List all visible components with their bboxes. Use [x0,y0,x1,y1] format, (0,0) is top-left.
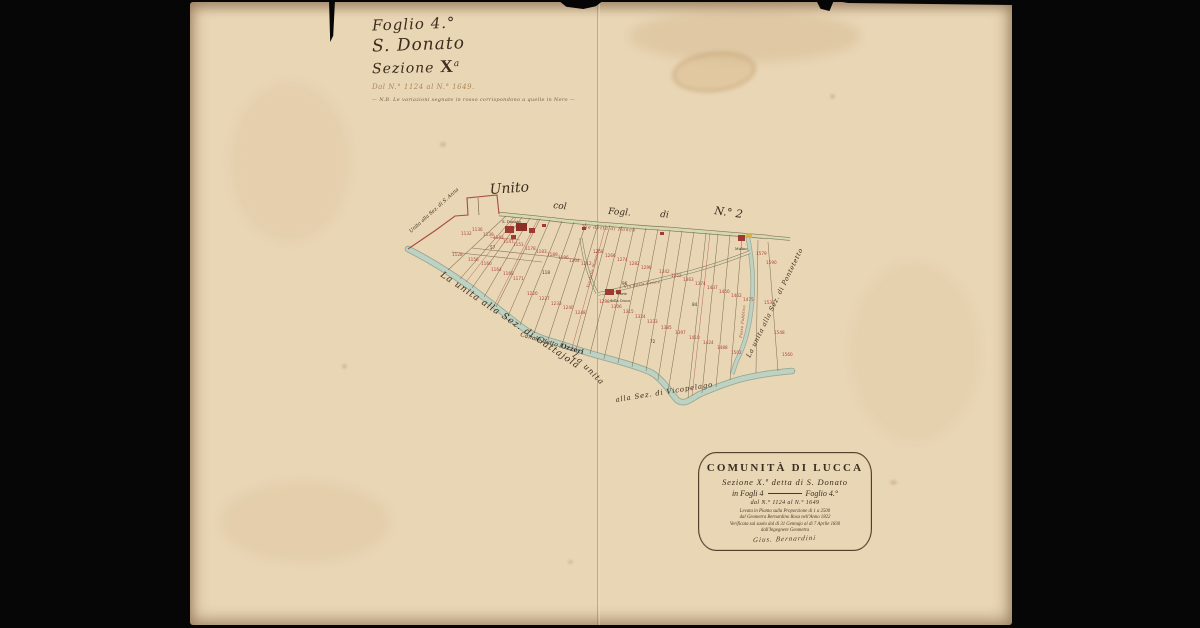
parcel-number: 1560 [782,352,793,357]
mill-label: Mulino [735,247,747,251]
parcel-number: 1227 [539,296,550,301]
parcel-number: 1488 [717,345,728,350]
cartouche-rule-dash [768,493,802,494]
parcel-number: 1248 [575,310,586,315]
cadastral-map: Unito col Fogl. di N.° 2 Via detta di Ro… [190,2,1012,625]
parcel-number: 1385 [661,325,672,330]
join-note-word-4: di [660,210,669,221]
adjoining-label-gattajola: La unita alla Sez. di Gattajola [437,270,581,372]
join-note-word-2: col [553,201,567,212]
parcel-number: 1183 [536,249,547,254]
parcel-number: 1171 [513,276,524,281]
parcel-number: 1298 [599,299,610,304]
promontory-line [478,198,479,215]
parcel-number: 1189 [547,252,558,257]
parcel-number: 1282 [629,261,640,266]
cartouche-parcel-range: dal N.° 1124 al N.° 1649 [751,500,820,506]
parcel-number: 1306 [611,304,622,309]
adjoining-sanna-group: Unita alla Sez. di S. Anna [408,187,460,235]
cartouche-engineer-line: dall'Ingegnere Geometra [761,528,809,533]
cartouche-title: COMUNITÀ DI LUCCA [707,462,864,474]
cartouche-sheet-number: Foglio 4.° [806,489,839,498]
parcel-number: 1352 [671,273,682,278]
village-label: S. Donato [502,219,521,224]
parcel-number: 1156 [468,257,479,262]
parcel-number: 1128 [452,252,463,257]
parcel-number: 1274 [617,257,628,262]
parcel-number: 1342 [659,269,670,274]
parcel-number: 1333 [647,319,658,324]
scan-background: Foglio 4.° S. Donato Sezione Xa Dal N.° … [0,0,1200,628]
parcel-number: 118 [542,270,550,275]
cartouche-signature: Gius. Bernardini [753,534,817,544]
parcel-number: 1437 [707,285,718,290]
parcel-number: 84 [692,302,698,307]
cartouche-verification: Verificata sul suolo dal dì 31 Gennajo a… [730,522,840,527]
parcel-number: 1424 [703,340,714,345]
parcel-number: 1178 [525,246,536,251]
parcel-number: 1363 [683,277,694,282]
parcel-number: 1450 [719,289,730,294]
parcel-number: 1212 [581,261,592,266]
parcel-number: 1240 [563,305,574,310]
parcel-number: 1462 [731,293,742,298]
parcel-number: 1502 [731,350,742,355]
parcel-number: 1475 [743,297,754,302]
parcel-number: 1196 [558,255,569,260]
adjoining-label-sanna: Unita alla Sez. di S. Anna [408,187,460,235]
parcel-number: 1204 [569,258,580,263]
join-note-word-3: Fogl. [607,207,631,219]
parcel-number: 1233 [551,301,562,306]
parcel-number: 72 [650,339,656,344]
parcel-number: 1266 [605,253,616,258]
parcel-number: 1324 [635,314,646,319]
parcel-number: 1397 [675,330,686,335]
parcel-number: 1132 [461,231,472,236]
parcel-number: 1315 [623,309,634,314]
adjoining-gattajola-group: La unita alla Sez. di Gattajola [437,270,581,372]
parcel-number: 1533 [764,300,775,305]
corte-label-b: della Croce [610,299,630,303]
parcel-number: 1590 [766,260,777,265]
parcel-number: 1548 [774,330,785,335]
road-label-croce: Via della Croce [623,279,660,289]
cartouche-survey-scale: Levata in Pianta sulla Proporzione di 1 … [740,509,830,514]
cartouche-surveyor: dal Geometra Bernardino Rosa nell'Anno 1… [740,515,831,520]
parcel-number: 1258 [593,249,604,254]
corte-label-a: Corte [617,292,627,296]
parcel-number: 1136 [472,227,483,232]
parcel-number: 1164 [491,267,502,272]
cartouche: COMUNITÀ DI LUCCA Sezione X.ª detta di S… [698,452,872,551]
parcel-number: 1410 [689,335,700,340]
parcel-number: 1579 [756,251,767,256]
cartouche-sheet-line: in Fogli 4 Foglio 4.° [732,489,838,498]
parcel-number: 1290 [641,265,652,270]
parcel-number: 1220 [527,291,538,296]
parcel-number: 96 [622,281,628,286]
parcel-number: 57 [490,245,496,250]
cartouche-section-line: Sezione X.ª detta di S. Donato [722,477,848,487]
parcel-number: 1374 [695,281,706,286]
parcel-number: 1160 [481,261,492,266]
join-note-sheet-number: N.° 2 [713,204,744,221]
parcel-number: 1151 [513,242,524,247]
join-note-word-1: Unito [489,179,529,198]
map-sheet: Foglio 4.° S. Donato Sezione Xa Dal N.° … [190,2,1012,625]
cartouche-sheet-count: in Fogli 4 [732,489,764,498]
